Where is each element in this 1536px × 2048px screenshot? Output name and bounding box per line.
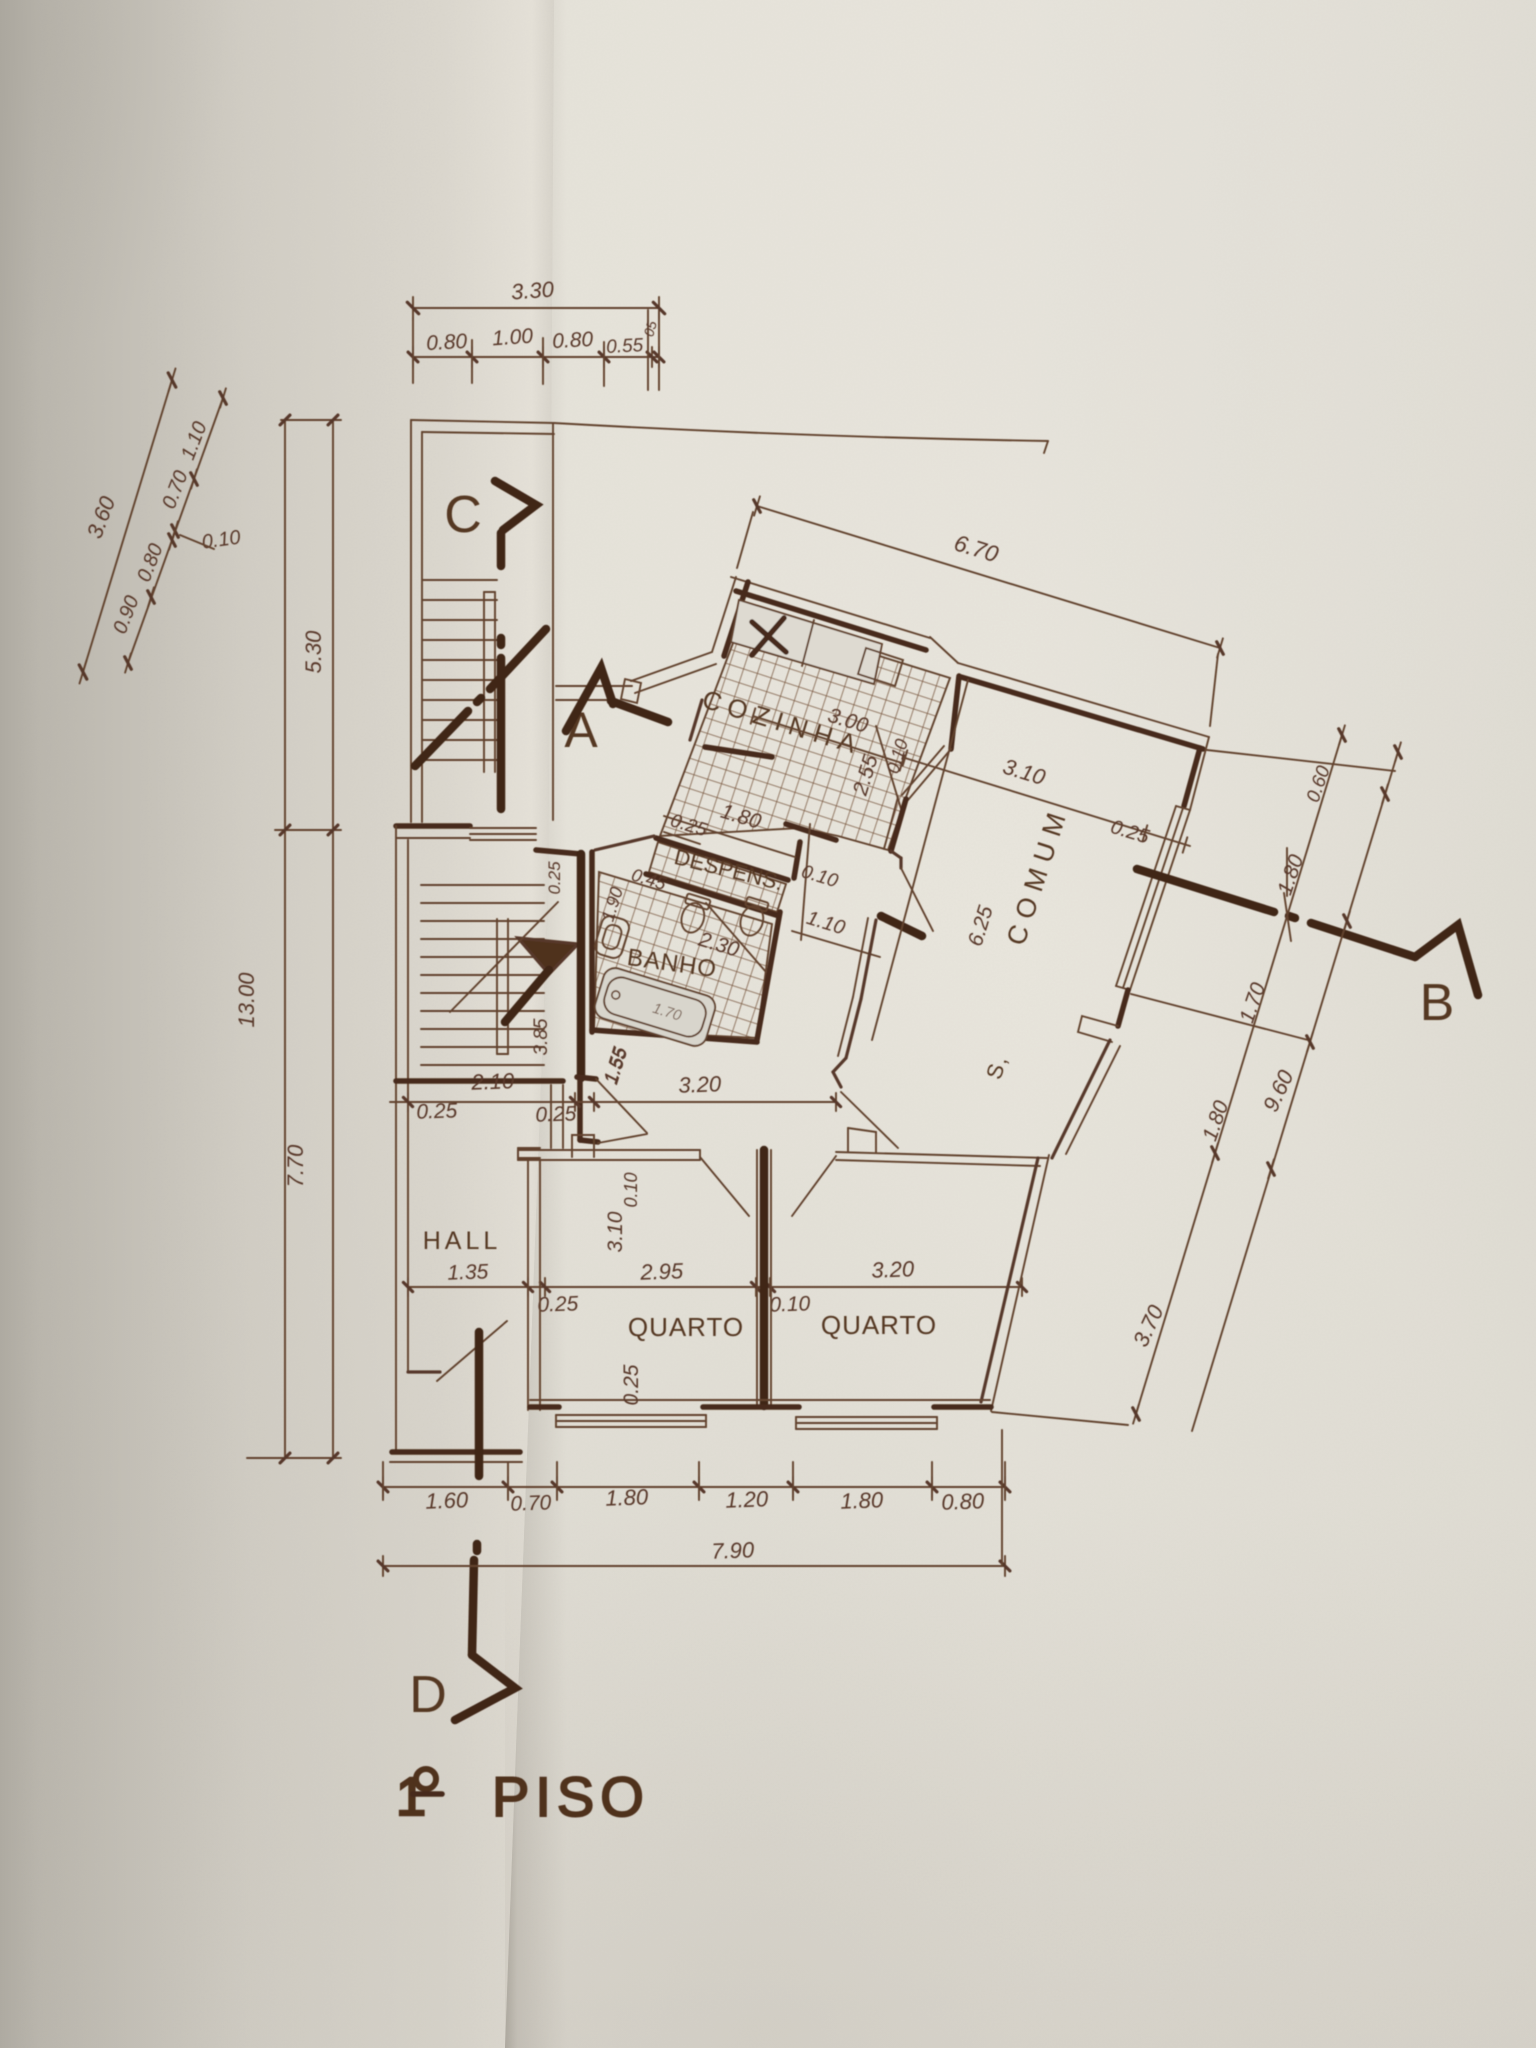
svg-text:5.30: 5.30 — [301, 630, 326, 674]
svg-text:3.10: 3.10 — [604, 1211, 627, 1252]
svg-text:1.00: 1.00 — [491, 325, 534, 351]
svg-text:1.80: 1.80 — [605, 1484, 649, 1511]
svg-text:0.70: 0.70 — [510, 1491, 552, 1515]
svg-text:C: C — [444, 486, 482, 544]
svg-text:0.80: 0.80 — [552, 328, 594, 353]
svg-text:HALL: HALL — [423, 1227, 502, 1255]
svg-text:QUARTO: QUARTO — [821, 1310, 937, 1340]
svg-text:3.20: 3.20 — [678, 1071, 722, 1098]
svg-text:1.35: 1.35 — [447, 1260, 489, 1284]
svg-text:3.85: 3.85 — [531, 1018, 552, 1055]
svg-text:0.25: 0.25 — [535, 1102, 577, 1126]
svg-text:0.55: 0.55 — [606, 335, 644, 358]
svg-text:0.25: 0.25 — [620, 1364, 643, 1405]
svg-text:2.95: 2.95 — [639, 1258, 684, 1285]
svg-text:1.60: 1.60 — [425, 1487, 469, 1514]
svg-text:7.90: 7.90 — [711, 1537, 755, 1564]
svg-text:7.70: 7.70 — [283, 1144, 308, 1188]
svg-text:0.10: 0.10 — [621, 1172, 641, 1207]
svg-text:0.80: 0.80 — [426, 330, 468, 355]
svg-text:1.20: 1.20 — [725, 1486, 769, 1513]
svg-text:0.25: 0.25 — [416, 1099, 458, 1123]
svg-text:PISO: PISO — [492, 1765, 650, 1828]
svg-text:2.10: 2.10 — [470, 1068, 515, 1095]
svg-text:0.25: 0.25 — [537, 1292, 579, 1316]
svg-text:3.20: 3.20 — [871, 1256, 915, 1283]
svg-text:13.00: 13.00 — [234, 972, 259, 1028]
svg-text:3.30: 3.30 — [510, 277, 555, 305]
svg-text:0.80: 0.80 — [941, 1488, 985, 1515]
svg-text:1: 1 — [396, 1767, 426, 1827]
svg-text:0.10: 0.10 — [769, 1292, 811, 1316]
svg-text:1.80: 1.80 — [840, 1487, 884, 1514]
svg-text:D: D — [409, 1666, 447, 1724]
svg-text:B: B — [1420, 974, 1455, 1032]
svg-text:QUARTO: QUARTO — [628, 1312, 744, 1342]
svg-text:0.25: 0.25 — [545, 861, 564, 895]
